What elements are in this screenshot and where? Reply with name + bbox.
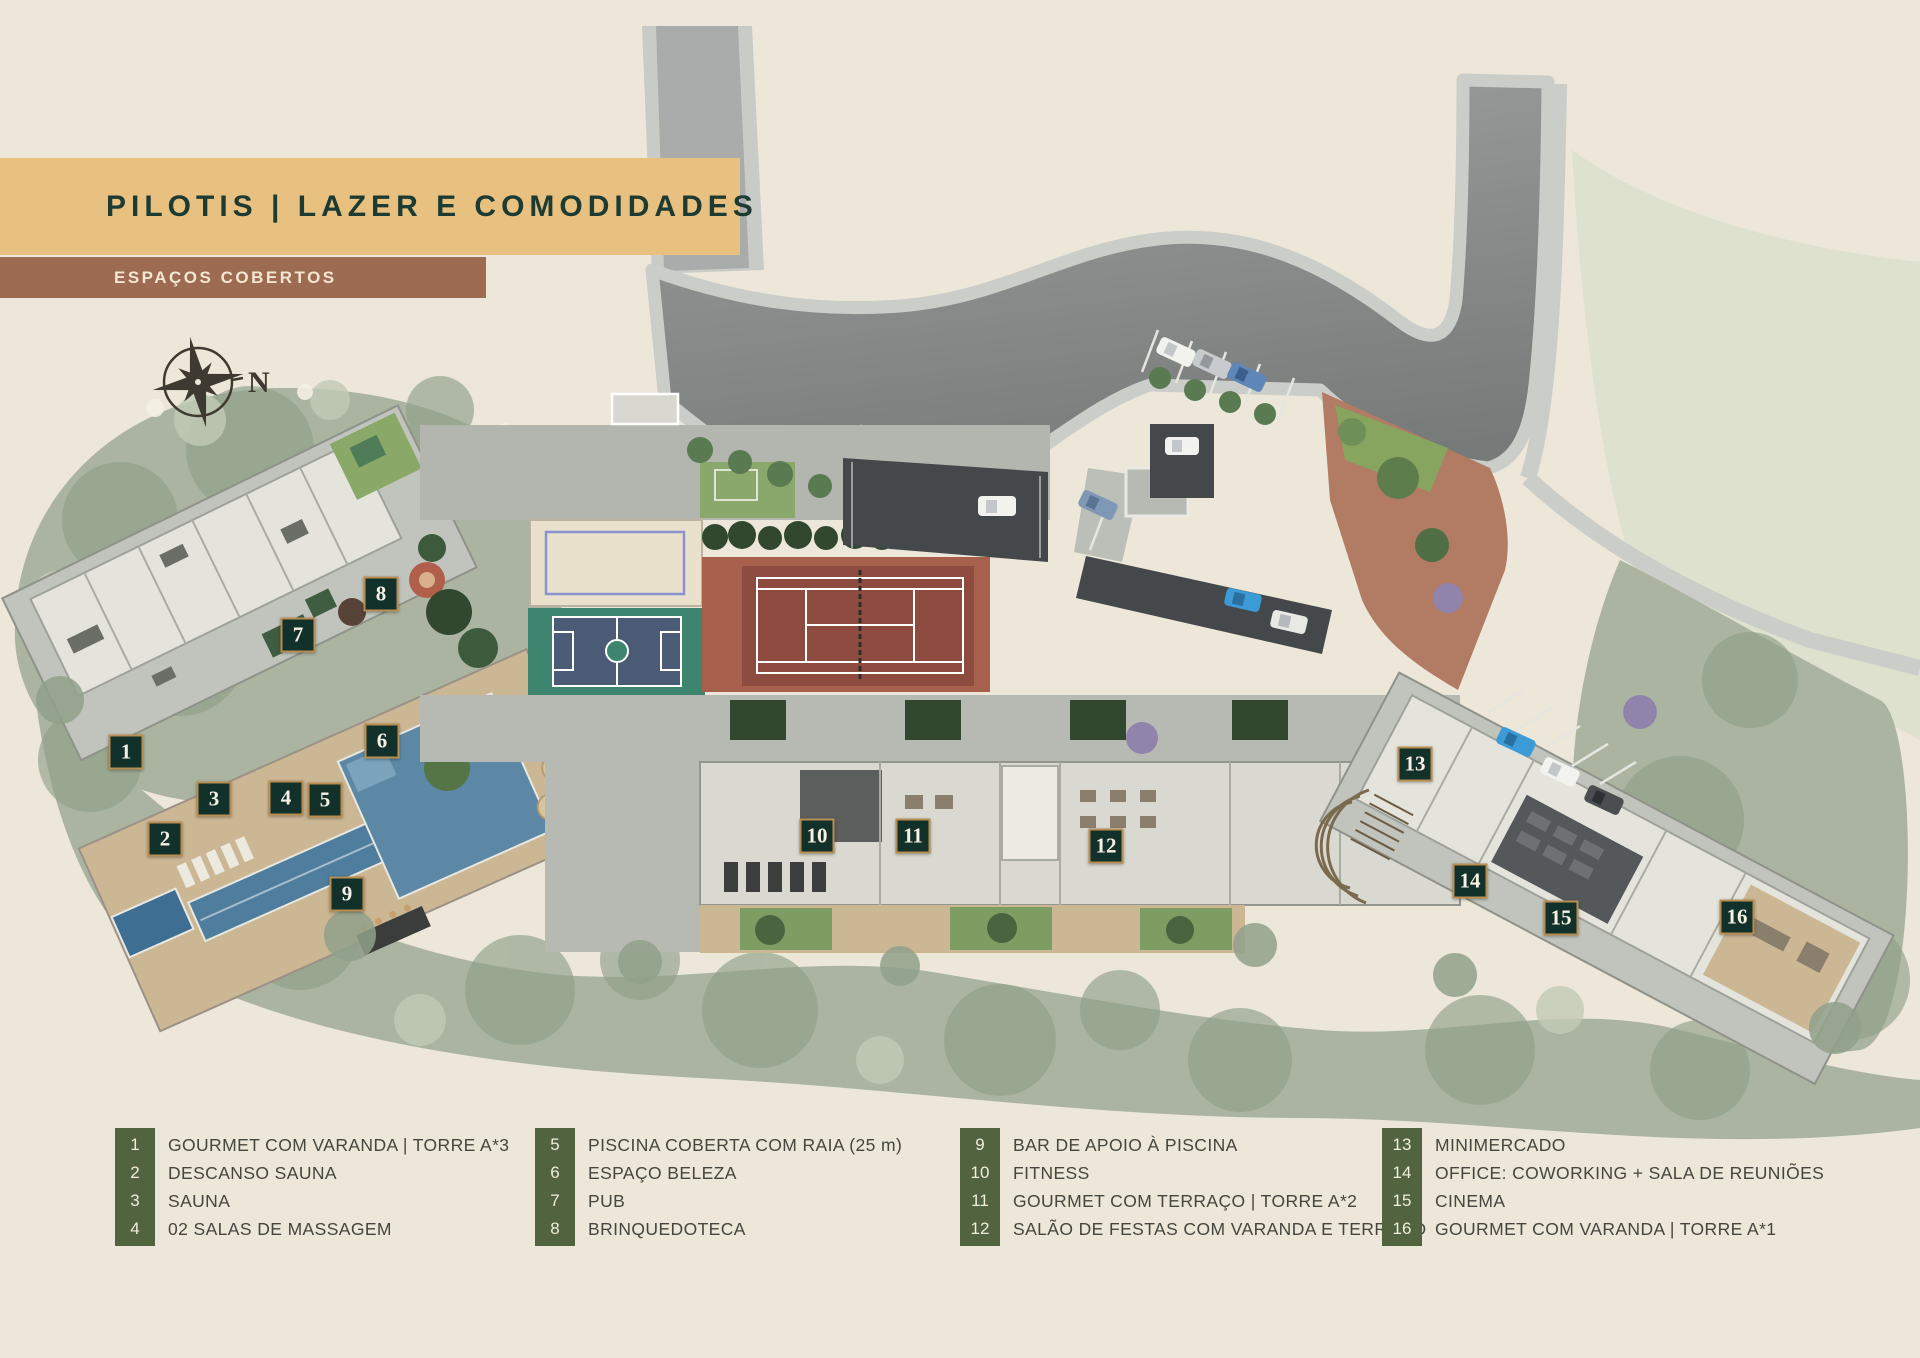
legend-item-number-1: 1 (115, 1131, 155, 1159)
legend-column-1: 1234GOURMET COM VARANDA | TORRE A*3DESCA… (115, 1128, 509, 1246)
legend-item-label-13: MINIMERCADO (1435, 1131, 1824, 1159)
legend-item-label-1: GOURMET COM VARANDA | TORRE A*3 (168, 1131, 509, 1159)
legend-item-number-14: 14 (1382, 1159, 1422, 1187)
legend-item-number-12: 12 (960, 1215, 1000, 1243)
legend-item-number-16: 16 (1382, 1215, 1422, 1243)
legend-number-strip: 5678 (535, 1128, 575, 1246)
legend-item-number-8: 8 (535, 1215, 575, 1243)
legend-label-list: GOURMET COM VARANDA | TORRE A*3DESCANSO … (168, 1128, 509, 1246)
legend-column-2: 5678PISCINA COBERTA COM RAIA (25 m)ESPAÇ… (535, 1128, 902, 1246)
legend-item-label-6: ESPAÇO BELEZA (588, 1159, 902, 1187)
legend-item-label-11: GOURMET COM TERRAÇO | TORRE A*2 (1013, 1187, 1427, 1215)
legend-label-list: PISCINA COBERTA COM RAIA (25 m)ESPAÇO BE… (588, 1128, 902, 1246)
legend-item-number-5: 5 (535, 1131, 575, 1159)
legend-item-number-7: 7 (535, 1187, 575, 1215)
legend-item-label-4: 02 SALAS DE MASSAGEM (168, 1215, 509, 1243)
legend-item-label-7: PUB (588, 1187, 902, 1215)
title-banner: PILOTIS | LAZER E COMODIDADES (0, 158, 740, 255)
legend-item-label-10: FITNESS (1013, 1159, 1427, 1187)
legend-column-4: 13141516MINIMERCADOOFFICE: COWORKING + S… (1382, 1128, 1824, 1246)
legend-number-strip: 1234 (115, 1128, 155, 1246)
legend-item-label-3: SAUNA (168, 1187, 509, 1215)
page-subtitle: ESPAÇOS COBERTOS (114, 268, 337, 288)
legend-item-label-9: BAR DE APOIO À PISCINA (1013, 1131, 1427, 1159)
legend-item-number-15: 15 (1382, 1187, 1422, 1215)
legend-column-3: 9101112BAR DE APOIO À PISCINAFITNESSGOUR… (960, 1128, 1427, 1246)
legend-item-number-2: 2 (115, 1159, 155, 1187)
page-title: PILOTIS | LAZER E COMODIDADES (106, 190, 758, 224)
legend-item-label-5: PISCINA COBERTA COM RAIA (25 m) (588, 1131, 902, 1159)
legend-item-label-8: BRINQUEDOTECA (588, 1215, 902, 1243)
legend-item-number-11: 11 (960, 1187, 1000, 1215)
legend-item-number-4: 4 (115, 1215, 155, 1243)
legend-item-label-12: SALÃO DE FESTAS COM VARANDA E TERRAÇO (1013, 1215, 1427, 1243)
legend-item-label-14: OFFICE: COWORKING + SALA DE REUNIÕES (1435, 1159, 1824, 1187)
site-plan-page: N PILOTIS | LAZER E COMODIDADES ESPAÇOS … (0, 0, 1920, 1358)
legend-item-label-15: CINEMA (1435, 1187, 1824, 1215)
legend-label-list: MINIMERCADOOFFICE: COWORKING + SALA DE R… (1435, 1128, 1824, 1246)
legend-item-number-10: 10 (960, 1159, 1000, 1187)
legend-item-label-2: DESCANSO SAUNA (168, 1159, 509, 1187)
legend: 1234GOURMET COM VARANDA | TORRE A*3DESCA… (0, 1128, 1920, 1258)
legend-number-strip: 9101112 (960, 1128, 1000, 1246)
legend-label-list: BAR DE APOIO À PISCINAFITNESSGOURMET COM… (1013, 1128, 1427, 1246)
legend-item-number-9: 9 (960, 1131, 1000, 1159)
legend-number-strip: 13141516 (1382, 1128, 1422, 1246)
legend-item-number-13: 13 (1382, 1131, 1422, 1159)
legend-item-number-3: 3 (115, 1187, 155, 1215)
compass-north-label: N (248, 366, 270, 399)
subtitle-banner: ESPAÇOS COBERTOS (0, 257, 486, 298)
legend-item-number-6: 6 (535, 1159, 575, 1187)
legend-item-label-16: GOURMET COM VARANDA | TORRE A*1 (1435, 1215, 1824, 1243)
